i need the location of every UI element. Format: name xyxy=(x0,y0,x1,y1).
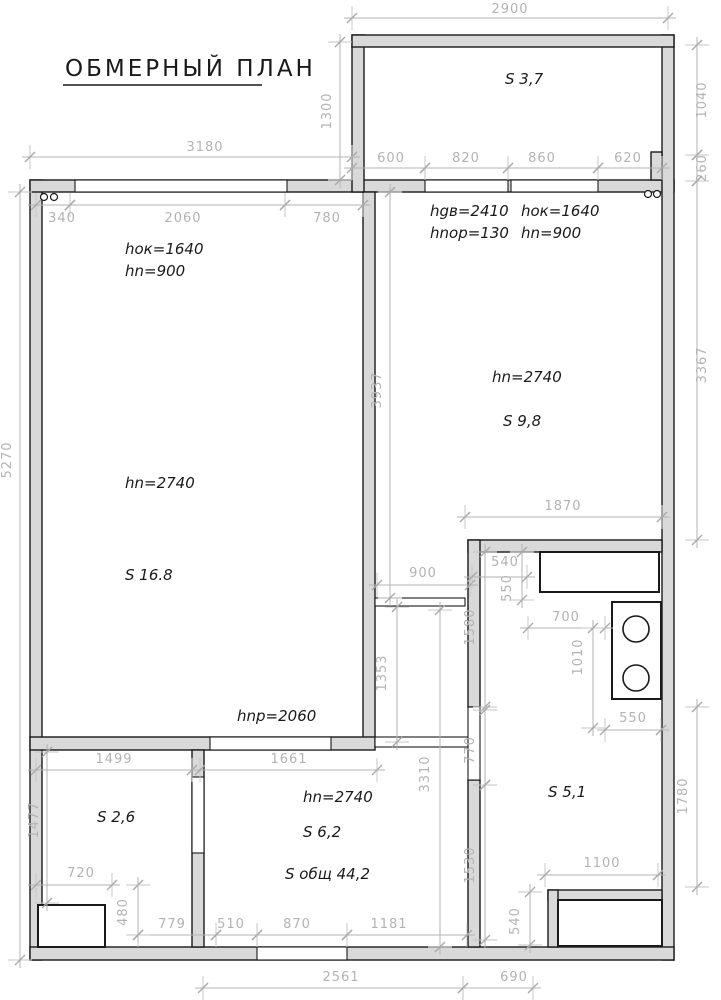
dim-label-h770: 770 xyxy=(463,736,478,764)
dim-w1661: 1661 xyxy=(192,752,385,782)
dim-w870: 870 xyxy=(249,917,355,947)
dim-label-w600: 600 xyxy=(377,151,405,166)
floor-plan-svg: ОБМЕРНЫЙ ПЛАН xyxy=(0,0,721,1000)
label-bedroom_ceiling_h: hn=2740 xyxy=(492,368,562,386)
label-living_ceiling_h: hn=2740 xyxy=(125,474,195,492)
kitchen-counter xyxy=(540,552,659,592)
outer-wall-right xyxy=(662,35,674,960)
dim-w900: 900 xyxy=(369,566,478,597)
dim-label-h1353: 1353 xyxy=(375,654,390,691)
label-bedroom_area: S 9,8 xyxy=(503,412,541,430)
dim-w690: 690 xyxy=(455,970,541,1000)
dim-label-w1499: 1499 xyxy=(95,752,132,767)
bathtub xyxy=(558,900,662,946)
dim-label-h1780: 1780 xyxy=(676,777,691,814)
window-vent-icon xyxy=(654,191,661,198)
label-bedroom_door_h: hgв=2410 xyxy=(430,202,509,220)
plan-title: ОБМЕРНЫЙ ПЛАН xyxy=(65,54,316,82)
dim-h480: 480 xyxy=(116,877,150,943)
dim-w780: 780 xyxy=(277,193,371,226)
bath-door-opening xyxy=(192,777,204,853)
dim-w860: 860 xyxy=(500,151,606,180)
measurement-plan-page: ОБМЕРНЫЙ ПЛАН xyxy=(0,0,721,1000)
dim-h1353: 1353 xyxy=(375,599,409,750)
dim-w550: 550 xyxy=(597,711,669,742)
dim-w510: 510 xyxy=(208,917,265,947)
label-total_area: S общ 44,2 xyxy=(285,865,370,883)
dim-label-h5270: 5270 xyxy=(0,441,15,478)
dim-w2900: 2900 xyxy=(344,2,676,30)
dim-w2060: 2060 xyxy=(62,193,293,226)
dim-label-w3180: 3180 xyxy=(186,140,223,155)
balcony-pier xyxy=(651,152,662,180)
interior-wall-main xyxy=(363,192,375,747)
balcony-wall-top xyxy=(352,35,674,47)
dim-h540: 540 xyxy=(508,884,542,953)
dim-label-w2900: 2900 xyxy=(491,2,528,17)
dim-label-h540: 540 xyxy=(508,907,523,935)
dim-w1181: 1181 xyxy=(339,917,475,947)
dim-w2561: 2561 xyxy=(195,970,471,1000)
dim-h1780: 1780 xyxy=(676,699,709,895)
label-bedroom_window_h: hок=1640 xyxy=(521,202,600,220)
dim-label-h1580: 1580 xyxy=(463,608,478,645)
dim-label-w820: 820 xyxy=(452,151,480,166)
dim-h1040: 1040 xyxy=(685,37,710,163)
dim-label-w340: 340 xyxy=(48,211,76,226)
dim-label-h3367: 3367 xyxy=(695,346,710,383)
dim-h3310: 3310 xyxy=(418,602,452,955)
dim-label-w2561: 2561 xyxy=(322,970,359,985)
dim-label-w1181: 1181 xyxy=(370,917,407,932)
balcony-window-right xyxy=(511,180,598,192)
dim-label-h3310: 3310 xyxy=(418,755,433,792)
dim-label-w550: 550 xyxy=(619,711,647,726)
dim-w1499: 1499 xyxy=(28,752,200,782)
dim-label-w870: 870 xyxy=(283,917,311,932)
niche-wall-horizontal xyxy=(548,890,662,900)
window-vent-icon xyxy=(41,194,48,201)
living-door-opening xyxy=(210,737,331,750)
dim-label-w860: 860 xyxy=(528,151,556,166)
dim-label-w900: 900 xyxy=(409,566,437,581)
outer-wall-bottom xyxy=(30,947,674,960)
label-living_sill_h: hn=900 xyxy=(125,262,185,280)
dim-label-h3937: 3937 xyxy=(370,371,385,408)
label-bedroom_threshold_h: hnор=130 xyxy=(430,224,509,242)
dim-label-h1040: 1040 xyxy=(695,81,710,118)
dim-label-h1010: 1010 xyxy=(571,638,586,675)
dim-w779: 779 xyxy=(130,917,224,947)
dim-label-w700: 700 xyxy=(552,610,580,625)
dim-w1100: 1100 xyxy=(537,856,666,887)
label-living_area: S 16.8 xyxy=(125,566,173,584)
dim-label-w540: 540 xyxy=(491,555,519,570)
dim-label-h550: 550 xyxy=(500,574,515,602)
dim-w700: 700 xyxy=(520,610,613,640)
label-hall_ceiling_h: hn=2740 xyxy=(303,788,373,806)
living-window xyxy=(75,180,287,192)
dim-label-w779: 779 xyxy=(158,917,186,932)
dim-label-h480: 480 xyxy=(116,898,131,926)
dim-h3367: 3367 xyxy=(685,173,710,548)
balcony-window-left xyxy=(425,180,508,192)
niche-wall-vertical xyxy=(548,890,558,947)
label-kitchen_area: S 5,1 xyxy=(548,783,586,801)
entrance-door-opening xyxy=(257,947,347,960)
kitchen-wall-top xyxy=(468,540,662,552)
dim-label-w510: 510 xyxy=(217,917,245,932)
dim-label-w1661: 1661 xyxy=(270,752,307,767)
dim-w3180: 3180 xyxy=(22,140,360,169)
dim-label-w720: 720 xyxy=(67,866,95,881)
label-living_window_h: hок=1640 xyxy=(125,240,204,258)
label-balcony_area: S 3,7 xyxy=(505,70,544,88)
shaft-box xyxy=(38,905,105,947)
label-hall_area: S 6,2 xyxy=(303,823,341,841)
dim-w820: 820 xyxy=(417,151,516,180)
outer-wall-left xyxy=(30,180,42,960)
dim-h1300: 1300 xyxy=(320,34,352,188)
dim-w1870: 1870 xyxy=(457,499,670,529)
dim-label-w1100: 1100 xyxy=(583,856,620,871)
dim-h1010: 1010 xyxy=(571,620,605,736)
dim-label-w2060: 2060 xyxy=(164,211,201,226)
label-bedroom_sill_h: hn=900 xyxy=(521,224,581,242)
dim-h5270: 5270 xyxy=(0,184,32,968)
dim-label-w1870: 1870 xyxy=(544,499,581,514)
window-vent-icon xyxy=(51,194,58,201)
dim-label-h1477: 1477 xyxy=(27,801,42,838)
label-bath_area: S 2,6 xyxy=(97,808,135,826)
label-opening_h: hnр=2060 xyxy=(237,707,316,725)
dim-label-h1530: 1530 xyxy=(463,846,478,883)
window-vent-icon xyxy=(645,191,652,198)
dim-label-w690: 690 xyxy=(500,970,528,985)
dim-label-w780: 780 xyxy=(313,211,341,226)
dim-label-h1300: 1300 xyxy=(320,92,335,129)
dim-label-w620: 620 xyxy=(614,151,642,166)
